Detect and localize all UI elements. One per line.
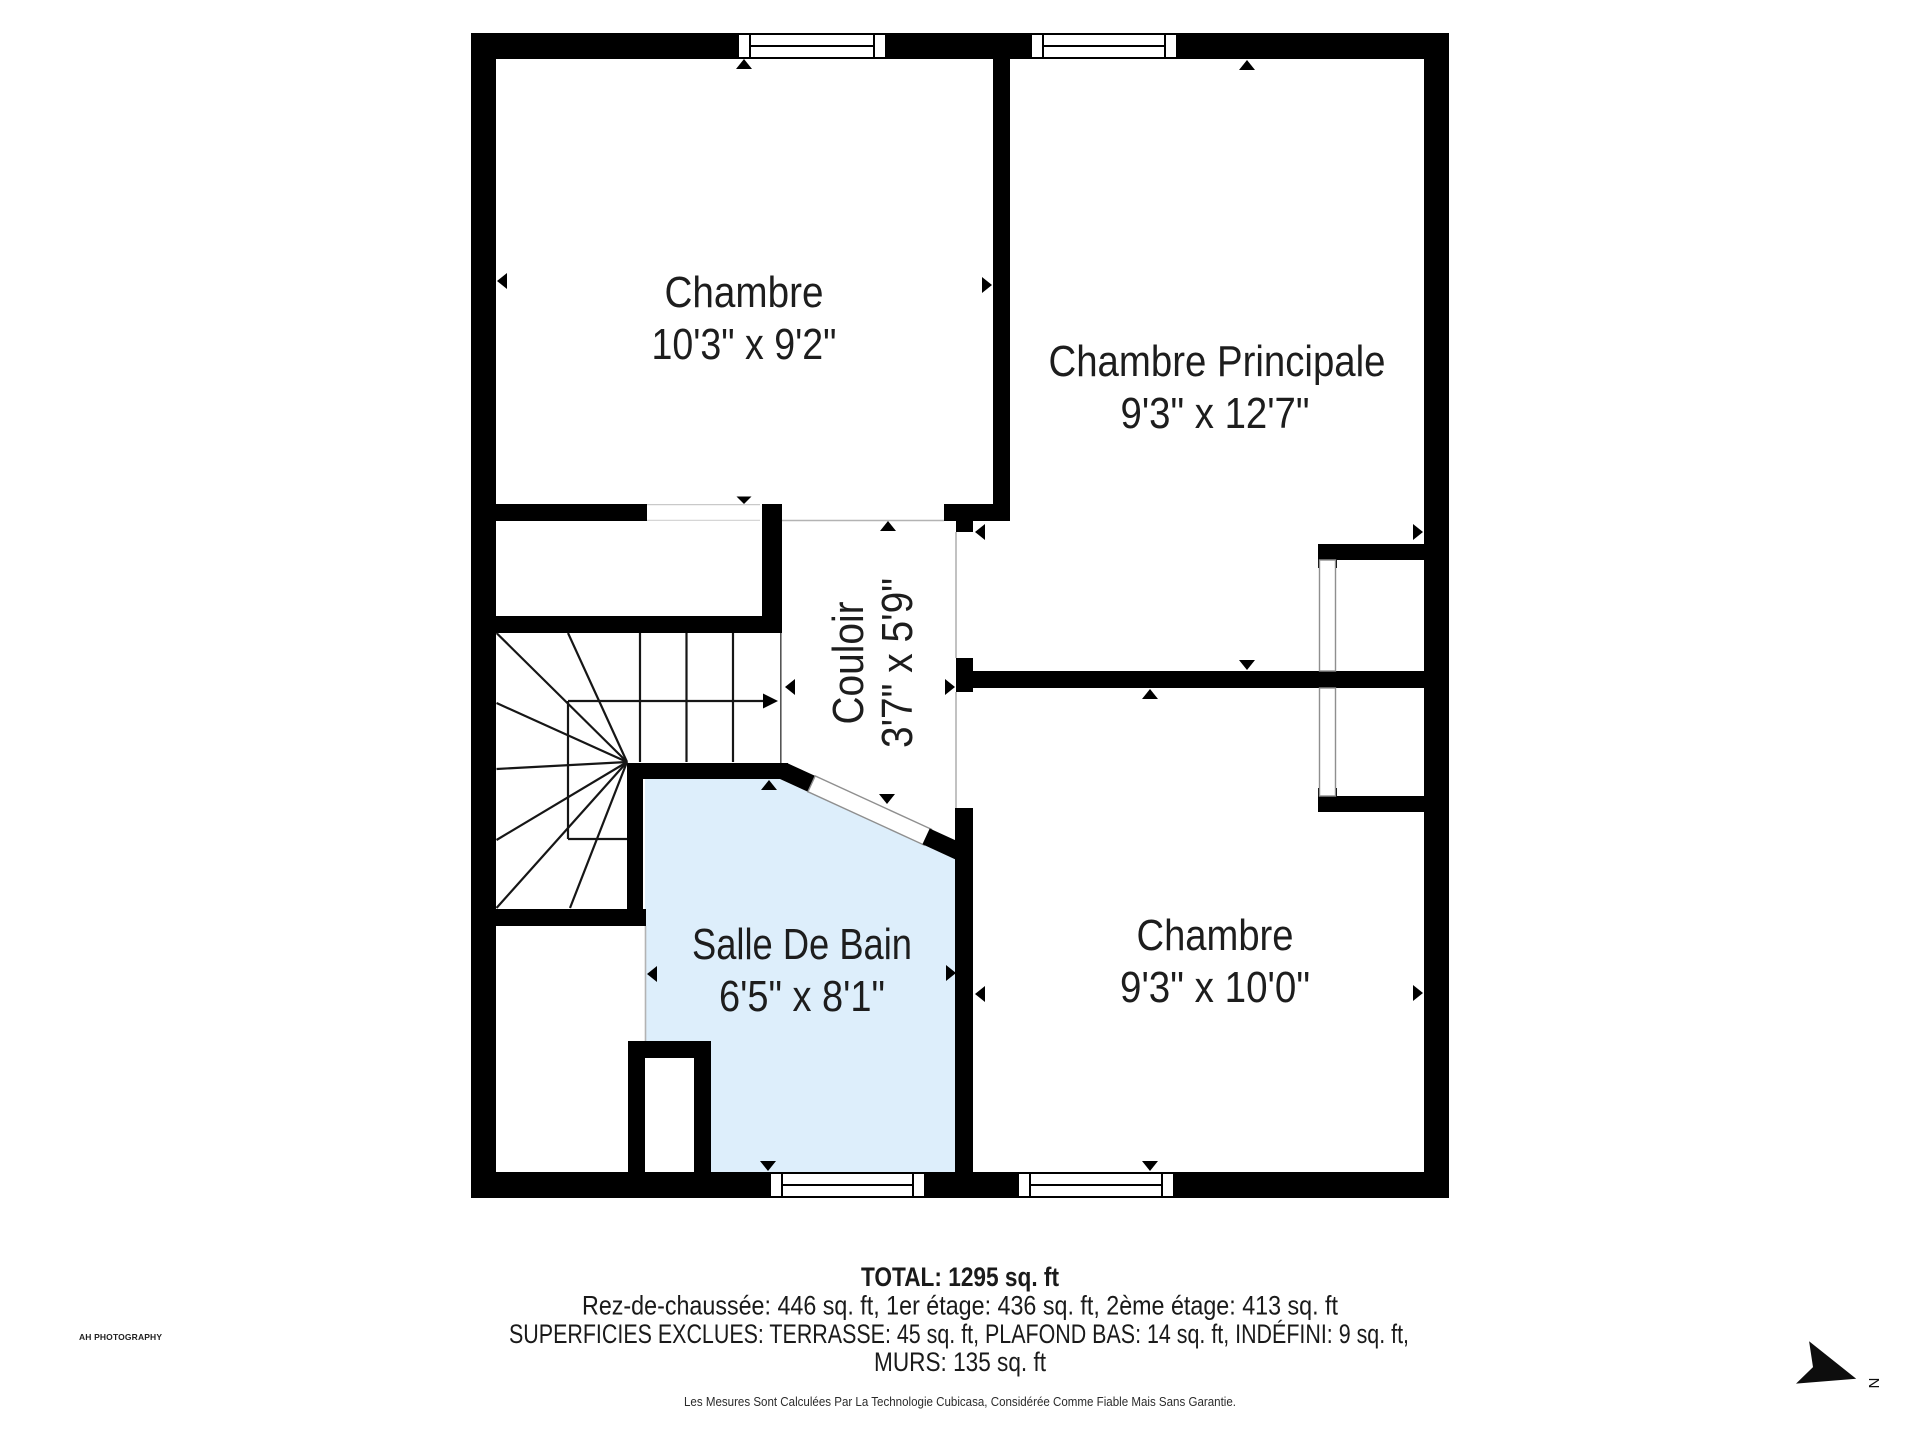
svg-text:TOTAL: 1295 sq. ft: TOTAL: 1295 sq. ft: [861, 1262, 1059, 1292]
svg-text:N: N: [1865, 1378, 1882, 1389]
svg-text:Rez-de-chaussée: 446 sq. ft, 1: Rez-de-chaussée: 446 sq. ft, 1er étage: …: [582, 1291, 1339, 1321]
svg-text:Les Mesures Sont Calculées Par: Les Mesures Sont Calculées Par La Techno…: [684, 1394, 1236, 1409]
svg-text:SUPERFICIES EXCLUES: TERRASSE:: SUPERFICIES EXCLUES: TERRASSE: 45 sq. ft…: [509, 1319, 1409, 1349]
svg-text:10'3" x 9'2": 10'3" x 9'2": [652, 320, 837, 369]
svg-text:AH PHOTOGRAPHY: AH PHOTOGRAPHY: [79, 1332, 162, 1342]
svg-text:MURS: 135 sq. ft: MURS: 135 sq. ft: [874, 1347, 1047, 1377]
svg-text:Chambre Principale: Chambre Principale: [1049, 337, 1386, 386]
svg-text:9'3" x 10'0": 9'3" x 10'0": [1120, 963, 1310, 1012]
svg-text:Chambre: Chambre: [665, 268, 824, 317]
svg-text:Chambre: Chambre: [1137, 911, 1294, 960]
svg-text:6'5" x 8'1": 6'5" x 8'1": [719, 972, 885, 1021]
svg-text:3'7" x 5'9": 3'7" x 5'9": [873, 578, 922, 748]
svg-text:Salle De Bain: Salle De Bain: [692, 920, 912, 969]
svg-text:Couloir: Couloir: [824, 602, 873, 725]
svg-text:9'3" x 12'7": 9'3" x 12'7": [1121, 389, 1310, 438]
